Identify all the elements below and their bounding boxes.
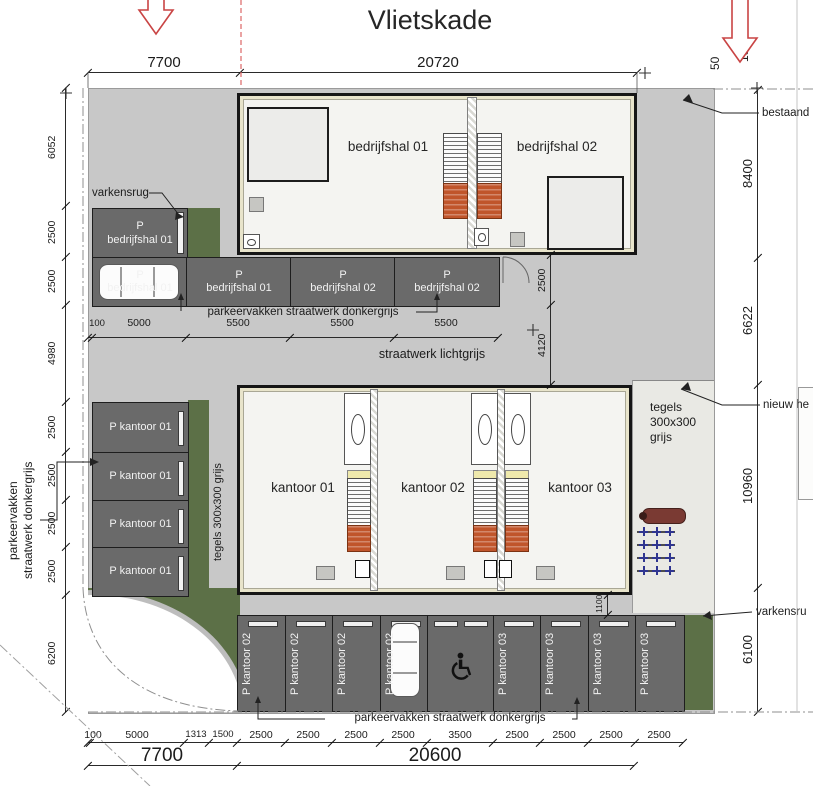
spot-label: P kantoor 01 bbox=[109, 565, 171, 578]
parking-spot-bedrijfshal01-top: P bedrijfshal 01 bbox=[92, 208, 188, 259]
dim-tick bbox=[754, 86, 763, 95]
dim-50: 50 bbox=[708, 48, 722, 78]
hal-room-2 bbox=[547, 176, 624, 250]
dim-10960: 10960 bbox=[740, 451, 755, 521]
kantoor2-shaft bbox=[484, 560, 497, 578]
kantoor-2-label: kantoor 02 bbox=[383, 480, 483, 495]
parking-spot-kantoor01-4: P kantoor 01 bbox=[92, 547, 189, 597]
green-strip-left bbox=[188, 400, 209, 590]
parking-spot-kantoor03-4: P kantoor 03 bbox=[635, 615, 685, 712]
dim-tick bbox=[84, 69, 93, 78]
parking-spot-mid-3: P bedrijfshal 02 bbox=[290, 257, 396, 307]
bike-icon bbox=[639, 540, 648, 549]
dim-bot-20600: 20600 bbox=[385, 745, 485, 767]
dim-4120: 4120 bbox=[536, 323, 548, 367]
dim-left-2500b: 2500 bbox=[46, 258, 58, 304]
dim-left-4980: 4980 bbox=[46, 330, 58, 376]
dim-tick bbox=[62, 301, 71, 310]
dim-line-mid-vertical bbox=[550, 255, 551, 385]
site-plan: bedrijfshal 01 bedrijfshal 02 kantoor 01… bbox=[0, 0, 813, 786]
kantoor-1-label: kantoor 01 bbox=[253, 480, 353, 495]
spot-label: P bedrijfshal 02 bbox=[414, 269, 479, 295]
spot-label: P bedrijfshal 02 bbox=[310, 269, 375, 295]
dim-tick bbox=[62, 398, 71, 407]
bike-icon bbox=[665, 553, 674, 562]
dim-7700-top: 7700 bbox=[124, 54, 204, 71]
spot-label: P kantoor 01 bbox=[109, 518, 171, 531]
dim-tick bbox=[62, 591, 71, 600]
dim-left-2500d: 2500 bbox=[46, 452, 58, 498]
dim-tick bbox=[233, 762, 242, 771]
kantoor3-stairs-lower bbox=[505, 525, 529, 552]
dim-mid-5500c: 5500 bbox=[424, 317, 468, 329]
parking-spot-kantoor02-3: P kantoor 02 bbox=[332, 615, 382, 712]
dim-bot-100: 100 bbox=[74, 729, 112, 741]
spot-label: P bedrijfshal 01 bbox=[206, 269, 271, 295]
dim-left-6200: 6200 bbox=[46, 630, 58, 676]
bike-rack-row bbox=[637, 557, 675, 559]
dim-tick bbox=[62, 253, 71, 262]
spot-label: P kantoor 02 bbox=[241, 624, 253, 703]
dim-line-bottom-1 bbox=[88, 742, 683, 743]
parking-spot-kantoor01-1: P kantoor 01 bbox=[92, 402, 189, 454]
bike-icon bbox=[665, 527, 674, 536]
dim-bot-2500f: 2500 bbox=[544, 729, 584, 741]
label-varkensrug-right: varkensru bbox=[756, 605, 807, 619]
kantoor-divider-1 bbox=[370, 389, 378, 591]
hal-toilet-1 bbox=[243, 234, 260, 249]
dim-tick bbox=[754, 708, 763, 717]
spot-label: P bedrijfshal 01 bbox=[107, 269, 172, 295]
parking-spot-kantoor03-3: P kantoor 03 bbox=[588, 615, 637, 712]
bike-icon bbox=[639, 566, 648, 575]
kantoor3-toilet bbox=[504, 393, 531, 465]
varkensrug-bar bbox=[178, 509, 184, 544]
parking-spot-kantoor01-2: P kantoor 01 bbox=[92, 452, 189, 502]
kantoor1-toilet bbox=[344, 393, 371, 465]
hal-toilet-2 bbox=[474, 228, 489, 246]
dim-bot-2500g: 2500 bbox=[591, 729, 631, 741]
dim-20720: 20720 bbox=[398, 54, 478, 71]
parking-spot-kantoor03-2: P kantoor 03 bbox=[540, 615, 590, 712]
spot-label: P kantoor 03 bbox=[544, 624, 556, 703]
kantoor1-mat bbox=[316, 566, 335, 580]
bike-icon bbox=[639, 527, 648, 536]
dim-tick bbox=[754, 381, 763, 390]
hal-divider-wall bbox=[467, 97, 477, 249]
dim-6622: 6622 bbox=[740, 291, 755, 351]
dim-bot-2500b: 2500 bbox=[288, 729, 328, 741]
parking-spot-kantoor01-3: P kantoor 01 bbox=[92, 500, 189, 549]
dim-tick bbox=[633, 69, 642, 78]
hal-stairs-left-lower bbox=[443, 183, 468, 219]
label-parkeervakken-left: parkeervakken straatwerk donkergrijs bbox=[6, 428, 36, 613]
red-arrow-left bbox=[139, 0, 173, 34]
bike-icon bbox=[652, 540, 661, 549]
varkensrug-bar bbox=[178, 411, 184, 446]
dim-tick bbox=[679, 739, 688, 748]
label-bestaand-hek: bestaand bbox=[762, 106, 809, 120]
dim-tick bbox=[62, 543, 71, 552]
bike-icon bbox=[652, 566, 661, 575]
dim-left-2500c: 2500 bbox=[46, 404, 58, 450]
kantoor3-stairs bbox=[505, 478, 529, 527]
varkensrug-strip bbox=[177, 212, 184, 254]
hal-mat-2 bbox=[510, 232, 525, 247]
dim-tick bbox=[62, 202, 71, 211]
dim-tick bbox=[62, 84, 71, 93]
dim-bot-2500a: 2500 bbox=[241, 729, 281, 741]
dim-left-2500f: 2500 bbox=[46, 548, 58, 594]
varkensrug-bar bbox=[178, 461, 184, 496]
dim-bot-7700: 7700 bbox=[112, 745, 212, 767]
label-parkeervakken-bottom: parkeervakken straatwerk donkergrijs bbox=[328, 711, 572, 725]
hal-stairs-right-lower bbox=[477, 183, 502, 219]
dim-bot-2500e: 2500 bbox=[497, 729, 537, 741]
dim-2500-mid: 2500 bbox=[536, 258, 548, 302]
label-straatwerk-lichtgrijs: straatwerk lichtgrijs bbox=[357, 347, 507, 363]
dim-bot-5000: 5000 bbox=[117, 729, 157, 741]
spot-label: P kantoor 02 bbox=[384, 624, 396, 703]
hal-unit-1-label: bedrijfshal 01 bbox=[328, 139, 448, 154]
dim-tick bbox=[630, 762, 639, 771]
spot-label: P kantoor 03 bbox=[639, 624, 651, 703]
green-corner bbox=[88, 588, 240, 712]
bike-rack-row bbox=[637, 570, 675, 572]
kantoor3-mat bbox=[536, 566, 555, 580]
parking-spot-handicap bbox=[427, 615, 495, 712]
dim-8400: 8400 bbox=[740, 144, 755, 204]
kantoor1-stairs-lower bbox=[347, 525, 371, 552]
spot-label: P bedrijfshal 01 bbox=[107, 220, 172, 246]
dim-line-top bbox=[88, 72, 637, 73]
dim-tick bbox=[62, 496, 71, 505]
dim-6100: 6100 bbox=[740, 620, 755, 680]
dim-line-mid bbox=[88, 337, 498, 338]
dim-tick bbox=[62, 708, 71, 717]
bike-icon bbox=[639, 553, 648, 562]
dim-left-2500a: 2500 bbox=[46, 209, 58, 255]
dim-bot-2500c: 2500 bbox=[336, 729, 376, 741]
bike-icon bbox=[665, 566, 674, 575]
dim-1100: 1100 bbox=[594, 592, 604, 616]
spot-label: P kantoor 01 bbox=[109, 470, 171, 483]
arrow-letter-b: b bbox=[731, 6, 747, 28]
label-tegels-right: tegels 300x300 grijs bbox=[650, 400, 696, 445]
spot-label: P kantoor 03 bbox=[497, 624, 509, 703]
wheelchair-icon bbox=[448, 651, 474, 683]
dim-tick bbox=[754, 254, 763, 263]
dim-line-left bbox=[65, 88, 66, 712]
label-tegels-left: tegels 300x300 grijs bbox=[212, 450, 226, 575]
spot-label: P kantoor 03 bbox=[592, 624, 604, 703]
label-parkeervakken-mid: parkeervakken straatwerk donkergrijs bbox=[188, 305, 418, 319]
dim-bot-3500: 3500 bbox=[440, 729, 480, 741]
label-varkensrug: varkensrug bbox=[92, 186, 149, 200]
parking-spot-mid-1: P bedrijfshal 01 bbox=[92, 257, 188, 307]
parking-spot-kantoor02-2: P kantoor 02 bbox=[285, 615, 334, 712]
green-patch-top bbox=[188, 208, 220, 257]
dim-left-6052: 6052 bbox=[46, 124, 58, 170]
dim-left-2500e: 2500 bbox=[46, 500, 58, 546]
parking-spot-kantoor02-1: P kantoor 02 bbox=[237, 615, 287, 712]
parking-spot-mid-2: P bedrijfshal 01 bbox=[186, 257, 292, 307]
dim-bot-2500d: 2500 bbox=[383, 729, 423, 741]
parking-spot-mid-4: P bedrijfshal 02 bbox=[394, 257, 500, 307]
parking-spot-kantoor03-1: P kantoor 03 bbox=[493, 615, 542, 712]
parking-spot-kantoor02-4: P kantoor 02 bbox=[380, 615, 429, 712]
dim-mid-5000: 5000 bbox=[117, 317, 161, 329]
spot-label: P kantoor 01 bbox=[109, 421, 171, 434]
bike-icon bbox=[652, 553, 661, 562]
dim-mid-100: 100 bbox=[84, 318, 110, 329]
varkensrug-bar bbox=[178, 556, 184, 591]
wheel-stop bbox=[464, 621, 488, 627]
dim-bot-1500: 1500 bbox=[206, 729, 240, 740]
bike-icon bbox=[652, 527, 661, 536]
dim-tick bbox=[236, 69, 245, 78]
dim-tick bbox=[62, 448, 71, 457]
street-name: Vlietskade bbox=[355, 5, 505, 36]
bike-rack-row bbox=[637, 531, 675, 533]
kantoor2-toilet bbox=[471, 393, 498, 465]
kantoor2-stairs-lower bbox=[473, 525, 497, 552]
kantoor-3-label: kantoor 03 bbox=[530, 480, 630, 495]
kantoor3-shaft bbox=[499, 560, 512, 578]
hal-mat-1 bbox=[249, 197, 264, 212]
kantoor1-shaft bbox=[355, 560, 370, 578]
wheel-stop bbox=[434, 621, 458, 627]
label-nieuw-hek: nieuw he bbox=[763, 398, 809, 412]
green-strip-bottom-right bbox=[684, 615, 713, 710]
motorcycle bbox=[642, 508, 686, 524]
spot-label: P kantoor 02 bbox=[289, 624, 301, 703]
dim-bot-2500h: 2500 bbox=[639, 729, 679, 741]
dim-tick bbox=[754, 584, 763, 593]
spot-label: P kantoor 02 bbox=[336, 624, 348, 703]
bike-rack-row bbox=[637, 544, 675, 546]
kantoor2-mat bbox=[446, 566, 465, 580]
dim-line-1100 bbox=[607, 595, 608, 615]
hal-room-1 bbox=[247, 107, 329, 182]
bike-icon bbox=[665, 540, 674, 549]
dim-tick bbox=[84, 762, 93, 771]
hal-unit-2-label: bedrijfshal 02 bbox=[497, 139, 617, 154]
